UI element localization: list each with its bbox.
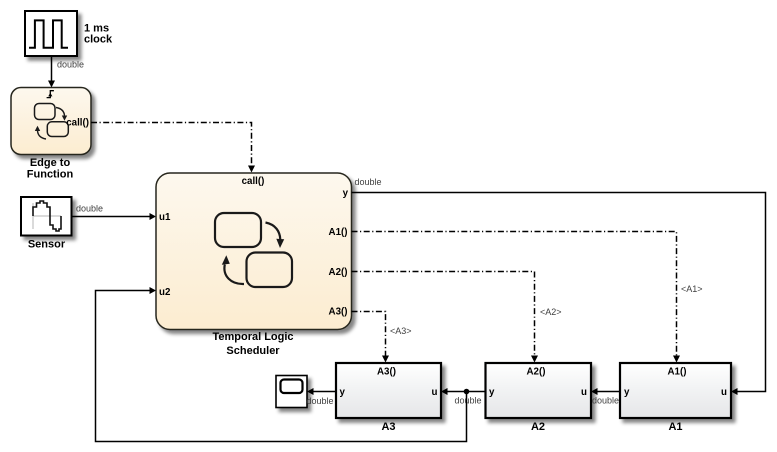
svg-text:double: double	[76, 204, 103, 214]
svg-text:Sensor: Sensor	[28, 239, 66, 251]
svg-text:A3(): A3()	[329, 306, 348, 317]
svg-text:y: y	[624, 387, 630, 398]
svg-text:Temporal Logic: Temporal Logic	[212, 331, 293, 343]
svg-text:clock: clock	[84, 34, 113, 46]
svg-text:Scheduler: Scheduler	[226, 345, 280, 357]
svg-text:A3: A3	[381, 421, 395, 433]
svg-text:A1(): A1()	[329, 227, 348, 238]
svg-text:u: u	[432, 387, 438, 398]
svg-text:<A1>: <A1>	[681, 284, 703, 294]
svg-text:call(): call()	[242, 176, 265, 187]
svg-text:double: double	[455, 395, 482, 405]
svg-text:<A3>: <A3>	[390, 326, 412, 336]
svg-text:call(): call()	[66, 117, 89, 128]
svg-text:A1: A1	[668, 421, 682, 433]
svg-text:u2: u2	[159, 287, 171, 298]
svg-text:y: y	[343, 188, 349, 199]
svg-text:A2(): A2()	[527, 367, 546, 378]
svg-text:A2: A2	[531, 421, 545, 433]
svg-text:double: double	[592, 396, 619, 406]
svg-text:u: u	[721, 387, 727, 398]
svg-text:double: double	[307, 396, 334, 406]
svg-text:<A2>: <A2>	[540, 307, 562, 317]
svg-text:u1: u1	[159, 212, 171, 223]
svg-text:Function: Function	[27, 169, 74, 181]
svg-text:u: u	[581, 387, 587, 398]
svg-text:A1(): A1()	[668, 367, 687, 378]
svg-text:A2(): A2()	[329, 267, 348, 278]
svg-text:y: y	[489, 387, 495, 398]
svg-text:double: double	[57, 60, 84, 70]
svg-text:double: double	[355, 177, 382, 187]
svg-text:Edge to: Edge to	[30, 157, 71, 169]
svg-text:A3(): A3()	[377, 367, 396, 378]
svg-text:y: y	[340, 387, 346, 398]
